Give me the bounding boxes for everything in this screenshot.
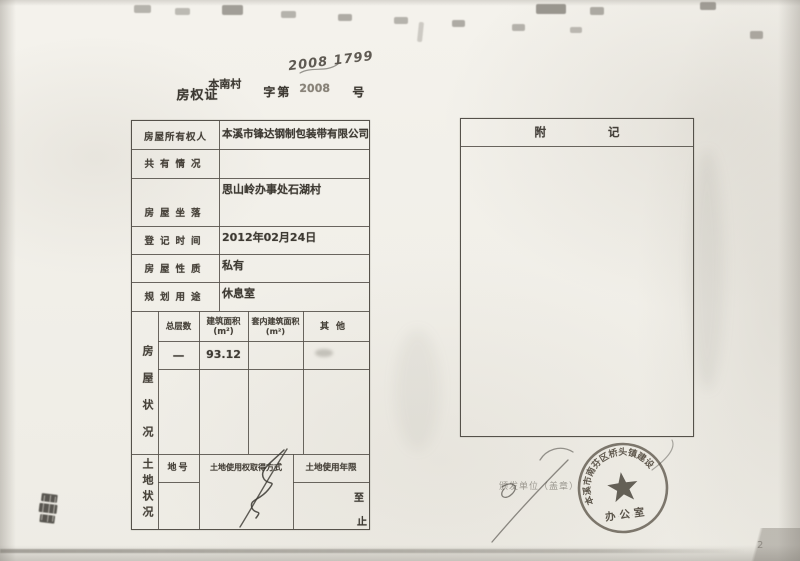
house-nature-label: 房屋性质 [132,261,219,275]
reg-date-value: 2012年02月24日 [222,229,316,245]
land-term-header: 土地使用年限 [293,463,369,473]
house-condition-side-label: 房屋状况 [139,345,155,453]
paper-smudge [690,150,724,390]
building-area-value: 93.12 [199,348,248,361]
land-right-method-header: 土地使用权取得方式 [199,463,293,473]
inner-area-header: 套内建筑面积 (m²) [248,317,303,336]
official-seal-stamp: 本溪市南芬区桥头镇建设 办公室 · · · · · · · [566,431,680,545]
notes-box: 附记 [460,118,694,437]
paper-smudge [395,330,440,450]
floors-header: 总层数 [158,322,199,332]
faint-mark [315,349,333,357]
cert-number-suffix: 号 [352,83,364,100]
floors-value: 一 [158,348,199,364]
co-ownership-label: 共有情况 [132,156,219,170]
other-header: 其他 [303,322,369,333]
land-number-header: 地号 [158,463,199,474]
cert-header: 房权证 本南村 字第 2008 号 [0,0,800,114]
stamp-area-sweep [492,460,568,542]
house-nature-value: 私有 [222,257,244,273]
notes-title: 附记 [461,124,755,140]
zi-di-label: 字第 [263,83,291,100]
small-stamp-mark [34,490,64,529]
seal-star-icon [606,470,640,503]
main-table: 房屋所有权人 共有情况 房屋坐落 登记时间 房屋性质 规划用途 本溪市锋达钢制包… [131,120,370,530]
planned-use-label: 规划用途 [132,289,219,303]
edge-bottom-shadow [0,545,800,561]
cert-number-printed: 2008 [299,82,330,95]
cert-region-label: 本南村 [208,76,241,92]
location-value: 思山岭办事处石湖村 [222,181,321,197]
building-area-header: 建筑面积 (m²) [199,317,248,337]
corner-fold [700,528,800,561]
paper-bottom-line [0,549,745,553]
owner-label: 房屋所有权人 [132,129,219,143]
location-label: 房屋坐落 [132,205,219,219]
land-term-from: 至 [354,489,364,504]
land-term-to: 止 [357,513,367,528]
seal-office-text: 办公室 [604,505,649,524]
planned-use-value: 休息室 [222,285,255,301]
scanned-certificate-page: 房权证 本南村 字第 2008 号 2008 1799 房屋所有权人 共有情况 … [0,0,800,561]
land-condition-side-label: 土地状况 [139,458,155,522]
page-number: 2 [757,540,763,551]
reg-date-label: 登记时间 [132,233,219,247]
owner-value: 本溪市锋达钢制包装带有限公司 [222,126,369,141]
